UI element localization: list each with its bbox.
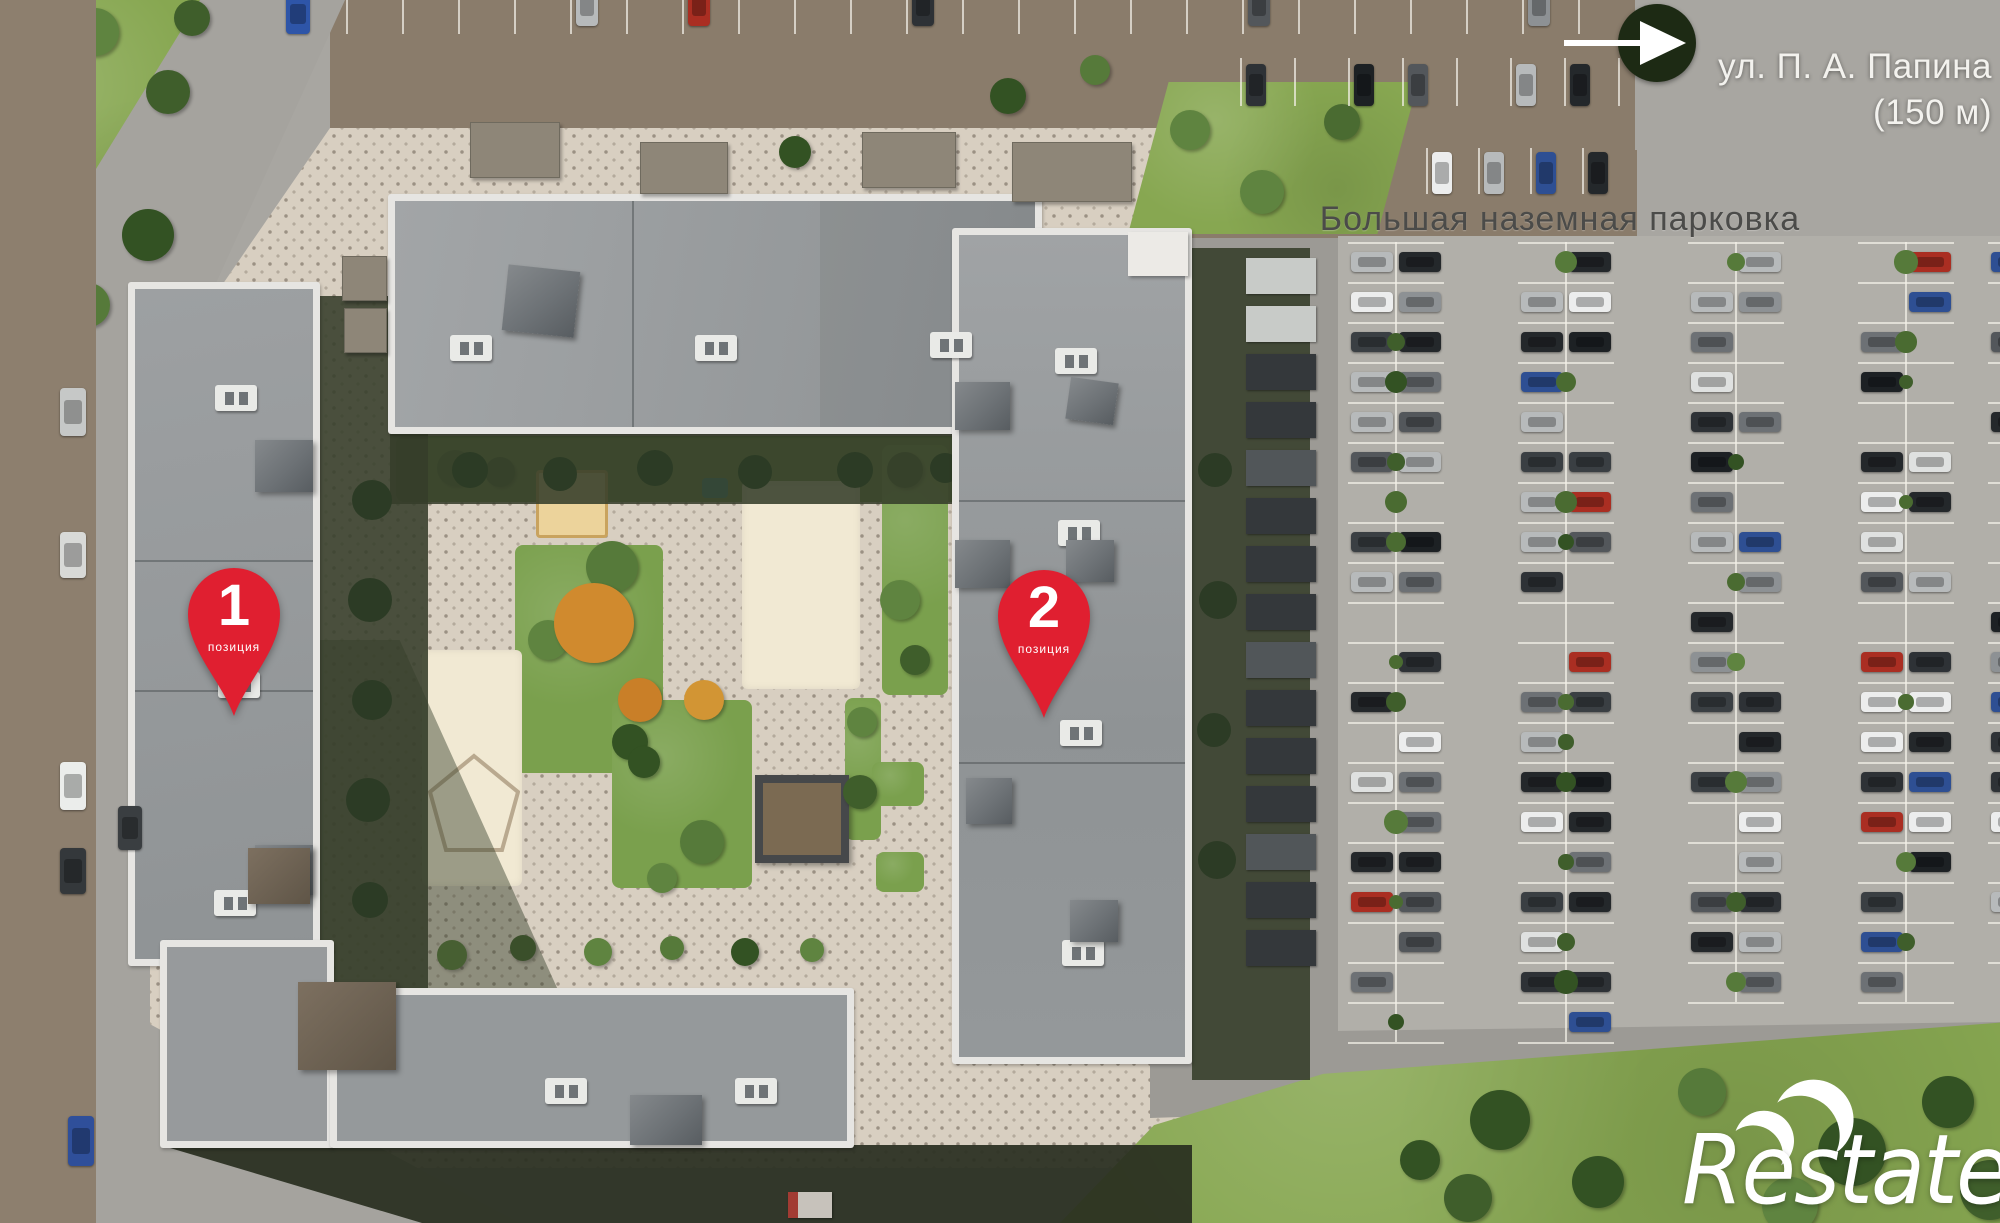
stall-line xyxy=(402,0,404,34)
stall-line xyxy=(1858,522,1954,524)
car-icon xyxy=(1909,572,1951,592)
car-icon xyxy=(1739,292,1781,312)
car-icon xyxy=(1861,532,1903,552)
car-icon xyxy=(1354,64,1374,106)
stall-line xyxy=(1348,402,1444,404)
stall-line xyxy=(1348,242,1444,244)
stall-line xyxy=(1518,962,1614,964)
stall-line xyxy=(1858,722,1954,724)
car-icon xyxy=(1739,252,1781,272)
car-icon xyxy=(60,848,86,894)
stall-line xyxy=(850,0,852,34)
stall-line xyxy=(1242,0,1244,34)
stall-line xyxy=(1348,722,1444,724)
stall-line xyxy=(626,0,628,34)
stall-line xyxy=(1858,602,1954,604)
stall-line xyxy=(1240,58,1242,106)
car-icon xyxy=(1991,612,2000,632)
pin-caption: позиция xyxy=(186,640,282,654)
garage-box xyxy=(1246,882,1316,918)
stall-line xyxy=(1518,282,1614,284)
stall-line xyxy=(570,0,572,34)
stall-line xyxy=(1988,522,2000,524)
car-icon xyxy=(1246,64,1266,106)
stall-line xyxy=(1688,1002,1784,1004)
car-icon xyxy=(1691,372,1733,392)
stall-line xyxy=(1348,802,1444,804)
stall-line xyxy=(1518,602,1614,604)
stall-line xyxy=(1348,762,1444,764)
car-icon xyxy=(1521,332,1563,352)
stall-line xyxy=(1518,802,1614,804)
stall-line xyxy=(1858,242,1954,244)
stall-line xyxy=(1988,402,2000,404)
stall-line xyxy=(1466,0,1468,34)
car-icon xyxy=(1991,332,2000,352)
stall-line xyxy=(1858,402,1954,404)
car-icon xyxy=(1399,332,1441,352)
stall-line xyxy=(1858,802,1954,804)
stall-line xyxy=(1688,482,1784,484)
car-icon xyxy=(1739,852,1781,872)
pin-number: 1 xyxy=(186,572,282,639)
car-icon xyxy=(1521,452,1563,472)
stall-line xyxy=(1688,322,1784,324)
stall-line xyxy=(906,0,908,34)
bush-icon xyxy=(1387,453,1404,470)
car-icon xyxy=(1861,572,1903,592)
stall-line xyxy=(1518,642,1614,644)
stall-line xyxy=(1510,58,1512,106)
bush-icon xyxy=(1554,970,1577,993)
garage-box xyxy=(1246,690,1316,726)
stall-line xyxy=(1688,442,1784,444)
stall-line xyxy=(1402,58,1404,106)
stall-line xyxy=(1294,58,1296,106)
stall-line xyxy=(1518,362,1614,364)
stall-line xyxy=(1688,802,1784,804)
stall-line xyxy=(1530,148,1532,194)
stall-line xyxy=(1988,922,2000,924)
stall-line xyxy=(1688,362,1784,364)
car-icon xyxy=(1991,252,2000,272)
stall-line xyxy=(1988,482,2000,484)
bush-icon xyxy=(1728,454,1744,470)
stall-line xyxy=(1130,0,1132,34)
stall-line xyxy=(1988,842,2000,844)
car-icon xyxy=(1432,152,1452,194)
stall-line xyxy=(1988,282,2000,284)
bush-icon xyxy=(1726,892,1746,912)
car-icon xyxy=(1569,532,1611,552)
car-icon xyxy=(1521,812,1563,832)
stall-line xyxy=(1348,522,1444,524)
stall-line xyxy=(1688,562,1784,564)
car-icon xyxy=(1861,812,1903,832)
car-icon xyxy=(1408,64,1428,106)
stall-line xyxy=(1348,1002,1444,1004)
car-icon xyxy=(1739,932,1781,952)
stall-line xyxy=(1858,762,1954,764)
stall-line xyxy=(1988,802,2000,804)
car-icon xyxy=(1248,0,1270,26)
car-icon xyxy=(68,1116,94,1166)
stall-line xyxy=(1518,482,1614,484)
bush-icon xyxy=(1556,372,1576,392)
bush-icon xyxy=(1558,734,1573,749)
stall-line xyxy=(1348,442,1444,444)
bush-icon xyxy=(1727,253,1745,271)
car-icon xyxy=(1516,64,1536,106)
stall-line xyxy=(1858,882,1954,884)
car-icon xyxy=(1909,292,1951,312)
car-icon xyxy=(1351,892,1393,912)
garage-box xyxy=(1246,498,1316,534)
stall-line xyxy=(1858,322,1954,324)
car-icon xyxy=(1351,412,1393,432)
car-icon xyxy=(60,388,86,436)
car-icon xyxy=(1691,492,1733,512)
garage-box xyxy=(1246,834,1316,870)
stall-line xyxy=(1426,148,1428,194)
garage-box xyxy=(1246,642,1316,678)
stall-line xyxy=(1348,962,1444,964)
car-icon xyxy=(1399,452,1441,472)
garage-box xyxy=(1246,930,1316,966)
car-icon xyxy=(1569,892,1611,912)
stall-line xyxy=(1348,922,1444,924)
stall-line xyxy=(1518,402,1614,404)
car-icon xyxy=(1351,292,1393,312)
stall-line xyxy=(1518,722,1614,724)
car-icon xyxy=(1536,152,1556,194)
stall-line xyxy=(1518,922,1614,924)
car-icon xyxy=(1909,732,1951,752)
stall-line xyxy=(1518,522,1614,524)
car-icon xyxy=(1399,892,1441,912)
stall-line xyxy=(1518,682,1614,684)
bush-icon xyxy=(1558,694,1573,709)
car-icon xyxy=(1351,572,1393,592)
car-icon xyxy=(1861,372,1903,392)
stall-line xyxy=(1410,0,1412,34)
stall-line xyxy=(1518,442,1614,444)
stall-line xyxy=(1348,602,1444,604)
car-icon xyxy=(1739,812,1781,832)
stall-line xyxy=(1988,882,2000,884)
car-icon xyxy=(1521,572,1563,592)
stall-line xyxy=(1858,1002,1954,1004)
stall-line xyxy=(1456,58,1458,106)
car-icon xyxy=(1691,932,1733,952)
garage-box xyxy=(1246,258,1316,294)
parking-label: Большая наземная парковка xyxy=(1300,200,1820,239)
car-icon xyxy=(1991,692,2000,712)
car-icon xyxy=(1991,812,2000,832)
stall-line xyxy=(1688,602,1784,604)
car-icon xyxy=(1399,732,1441,752)
car-icon xyxy=(1991,892,2000,912)
car-icon xyxy=(1528,0,1550,26)
stall-line xyxy=(1348,322,1444,324)
site-plan: ул. П. А. Папина (150 м) Большая наземна… xyxy=(0,0,2000,1223)
watermark: Restate xyxy=(1682,1114,2000,1223)
car-icon xyxy=(1570,64,1590,106)
stall-line xyxy=(1348,642,1444,644)
stall-line xyxy=(1348,882,1444,884)
stall-line xyxy=(1348,482,1444,484)
bush-icon xyxy=(1894,250,1917,273)
car-icon xyxy=(1739,532,1781,552)
bush-icon xyxy=(1558,854,1573,869)
car-icon xyxy=(1691,692,1733,712)
car-icon xyxy=(1521,692,1563,712)
car-icon xyxy=(286,0,310,34)
car-icon xyxy=(1351,972,1393,992)
bush-icon xyxy=(1895,331,1916,352)
car-icon xyxy=(1909,452,1951,472)
car-icon xyxy=(1991,652,2000,672)
stall-line xyxy=(1905,242,1907,1002)
car-icon xyxy=(1739,692,1781,712)
garage-box xyxy=(1246,354,1316,390)
kiosk xyxy=(788,1192,832,1218)
car-icon xyxy=(1909,812,1951,832)
pin-caption: позиция xyxy=(996,642,1092,656)
bush-icon xyxy=(1897,933,1916,952)
car-icon xyxy=(1909,692,1951,712)
car-icon xyxy=(1739,412,1781,432)
car-icon xyxy=(1861,652,1903,672)
stall-line xyxy=(1858,362,1954,364)
stall-line xyxy=(1074,0,1076,34)
street-label-line1: ул. П. А. Папина xyxy=(1718,44,1992,90)
car-icon xyxy=(1691,452,1733,472)
car-icon xyxy=(688,0,710,26)
stall-line xyxy=(1688,522,1784,524)
garage-box xyxy=(1246,306,1316,342)
stall-line xyxy=(1018,0,1020,34)
car-icon xyxy=(1991,772,2000,792)
stall-line xyxy=(1988,362,2000,364)
stall-line xyxy=(1688,282,1784,284)
car-icon xyxy=(1569,332,1611,352)
stall-line xyxy=(1988,682,2000,684)
stall-line xyxy=(962,0,964,34)
car-icon xyxy=(60,762,86,810)
bush-icon xyxy=(1386,692,1407,713)
stall-line xyxy=(1688,922,1784,924)
bush-icon xyxy=(1387,333,1405,351)
car-icon xyxy=(1399,852,1441,872)
stall-line xyxy=(1988,642,2000,644)
car-icon xyxy=(1521,892,1563,912)
car-icon xyxy=(1861,692,1903,712)
garage-box xyxy=(1246,594,1316,630)
stall-line xyxy=(1518,762,1614,764)
car-icon xyxy=(1351,252,1393,272)
car-icon xyxy=(1861,492,1903,512)
stall-line xyxy=(1348,682,1444,684)
bush-icon xyxy=(1727,573,1745,591)
stall-line xyxy=(1348,58,1350,106)
stall-line xyxy=(1354,0,1356,34)
stall-line xyxy=(1988,722,2000,724)
garage-box xyxy=(1246,402,1316,438)
garage-box xyxy=(1246,450,1316,486)
car-icon xyxy=(1569,852,1611,872)
car-icon xyxy=(1691,412,1733,432)
car-icon xyxy=(1351,772,1393,792)
stall-line xyxy=(1518,1042,1614,1044)
car-icon xyxy=(1399,652,1441,672)
stall-line xyxy=(1858,562,1954,564)
car-icon xyxy=(1991,412,2000,432)
stall-line xyxy=(1688,722,1784,724)
car-icon xyxy=(1569,812,1611,832)
car-icon xyxy=(1861,452,1903,472)
stall-line xyxy=(1582,148,1584,194)
position-pin-1[interactable]: 1 позиция xyxy=(186,566,282,718)
street-label-line2: (150 м) xyxy=(1718,90,1992,136)
stall-line xyxy=(1988,962,2000,964)
stall-line xyxy=(738,0,740,34)
car-icon xyxy=(1569,452,1611,472)
stall-line xyxy=(1988,562,2000,564)
stall-line xyxy=(1298,0,1300,34)
car-icon xyxy=(118,806,142,850)
car-icon xyxy=(1569,652,1611,672)
car-icon xyxy=(1351,852,1393,872)
stall-line xyxy=(1988,602,2000,604)
bush-icon xyxy=(1385,491,1407,513)
stall-line xyxy=(1518,242,1614,244)
car-icon xyxy=(1739,572,1781,592)
stall-line xyxy=(1478,148,1480,194)
stall-line xyxy=(1735,242,1737,1002)
stall-line xyxy=(1988,442,2000,444)
stall-line xyxy=(1858,282,1954,284)
stall-line xyxy=(1518,322,1614,324)
car-icon xyxy=(1991,732,2000,752)
car-icon xyxy=(1521,732,1563,752)
car-icon xyxy=(1691,532,1733,552)
car-icon xyxy=(1399,412,1441,432)
car-icon xyxy=(1691,332,1733,352)
stall-line xyxy=(1988,242,2000,244)
car-icon xyxy=(576,0,598,26)
car-icon xyxy=(1399,772,1441,792)
stall-line xyxy=(458,0,460,34)
car-icon xyxy=(1861,892,1903,912)
stall-line xyxy=(1522,0,1524,34)
stall-line xyxy=(1858,842,1954,844)
garage-box xyxy=(1246,546,1316,582)
stall-line xyxy=(1348,362,1444,364)
car-icon xyxy=(1691,612,1733,632)
bush-icon xyxy=(1555,491,1577,513)
stall-line xyxy=(1858,442,1954,444)
stall-line xyxy=(1186,0,1188,34)
bush-icon xyxy=(1898,694,1913,709)
stall-line xyxy=(1858,482,1954,484)
stall-line xyxy=(1518,842,1614,844)
car-icon xyxy=(60,532,86,578)
stall-line xyxy=(682,0,684,34)
car-icon xyxy=(1861,972,1903,992)
position-pin-2[interactable]: 2 позиция xyxy=(996,568,1092,720)
stall-line xyxy=(1688,842,1784,844)
stall-line xyxy=(1988,322,2000,324)
stall-line xyxy=(1518,882,1614,884)
car-icon xyxy=(1399,252,1441,272)
pin-number: 2 xyxy=(996,574,1092,641)
stall-line xyxy=(794,0,796,34)
car-icon xyxy=(1484,152,1504,194)
car-icon xyxy=(1909,492,1951,512)
stall-line xyxy=(1688,642,1784,644)
bush-icon xyxy=(1725,771,1747,793)
car-icon xyxy=(1739,732,1781,752)
car-icon xyxy=(1521,292,1563,312)
stall-line xyxy=(1688,242,1784,244)
street-label: ул. П. А. Папина (150 м) xyxy=(1718,44,1992,135)
garage-box xyxy=(1246,786,1316,822)
car-icon xyxy=(1569,692,1611,712)
car-icon xyxy=(1399,292,1441,312)
bush-icon xyxy=(1384,810,1408,834)
stall-line xyxy=(1858,642,1954,644)
stall-line xyxy=(1518,1002,1614,1004)
stall-line xyxy=(1688,882,1784,884)
car-icon xyxy=(1588,152,1608,194)
car-icon xyxy=(912,0,934,26)
stall-line xyxy=(1688,762,1784,764)
garage-box xyxy=(1246,738,1316,774)
car-icon xyxy=(1569,292,1611,312)
stall-line xyxy=(346,0,348,34)
stall-line xyxy=(1988,762,2000,764)
stall-line xyxy=(1688,402,1784,404)
stall-line xyxy=(1688,962,1784,964)
car-icon xyxy=(1909,652,1951,672)
stall-line xyxy=(1348,1042,1444,1044)
bush-icon xyxy=(1899,375,1914,390)
bush-icon xyxy=(1388,1014,1404,1030)
car-icon xyxy=(1569,1012,1611,1032)
car-icon xyxy=(1521,532,1563,552)
bush-icon xyxy=(1557,933,1575,951)
car-icon xyxy=(1399,932,1441,952)
stall-line xyxy=(1348,562,1444,564)
car-icon xyxy=(1909,772,1951,792)
stall-line xyxy=(1688,682,1784,684)
stall-line xyxy=(1348,282,1444,284)
stall-line xyxy=(1858,922,1954,924)
arrow-right-icon xyxy=(1548,17,1708,69)
stall-line xyxy=(514,0,516,34)
car-icon xyxy=(1861,772,1903,792)
stall-line xyxy=(1348,842,1444,844)
stall-line xyxy=(1858,962,1954,964)
car-icon xyxy=(1691,292,1733,312)
stall-line xyxy=(1858,682,1954,684)
car-icon xyxy=(1861,732,1903,752)
bush-icon xyxy=(1727,653,1744,670)
car-icon xyxy=(1399,572,1441,592)
car-icon xyxy=(1521,412,1563,432)
stall-line xyxy=(1518,562,1614,564)
